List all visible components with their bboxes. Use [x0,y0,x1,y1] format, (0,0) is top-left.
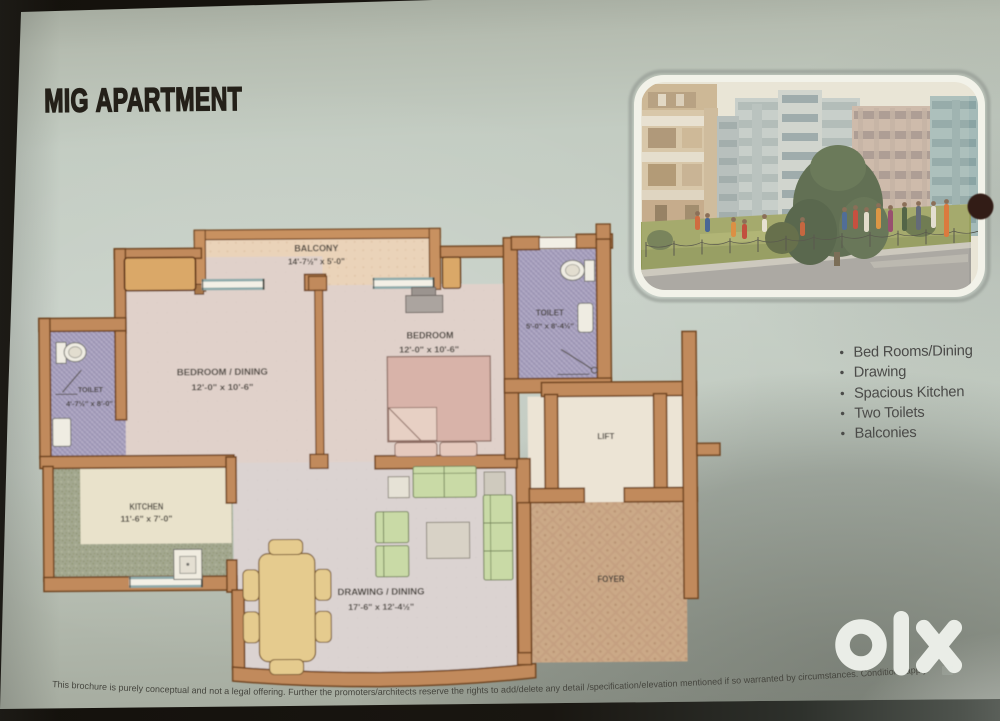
svg-text:11'-6" x 7'-0": 11'-6" x 7'-0" [120,514,172,523]
svg-text:14'-7½" x 5'-0": 14'-7½" x 5'-0" [288,256,345,266]
svg-text:BEDROOM: BEDROOM [406,330,453,340]
svg-text:TOILET: TOILET [536,308,564,317]
svg-text:KITCHEN: KITCHEN [129,502,163,512]
svg-text:DRAWING / DINING: DRAWING / DINING [337,586,424,597]
svg-text:4'-7½" x 8'-0": 4'-7½" x 8'-0" [66,399,113,408]
svg-text:5'-0" x 8'-4½": 5'-0" x 8'-4½" [526,321,574,330]
svg-text:BEDROOM / DINING: BEDROOM / DINING [177,367,268,378]
svg-text:12'-0" x 10'-6": 12'-0" x 10'-6" [191,382,253,392]
svg-text:12'-0" x 10'-6": 12'-0" x 10'-6" [399,344,459,354]
svg-text:BALCONY: BALCONY [294,243,338,253]
svg-text:17'-6" x 12'-4½": 17'-6" x 12'-4½" [348,602,414,613]
svg-text:FOYER: FOYER [597,574,625,584]
svg-text:LIFT: LIFT [597,431,615,441]
svg-text:TOILET: TOILET [78,385,103,394]
